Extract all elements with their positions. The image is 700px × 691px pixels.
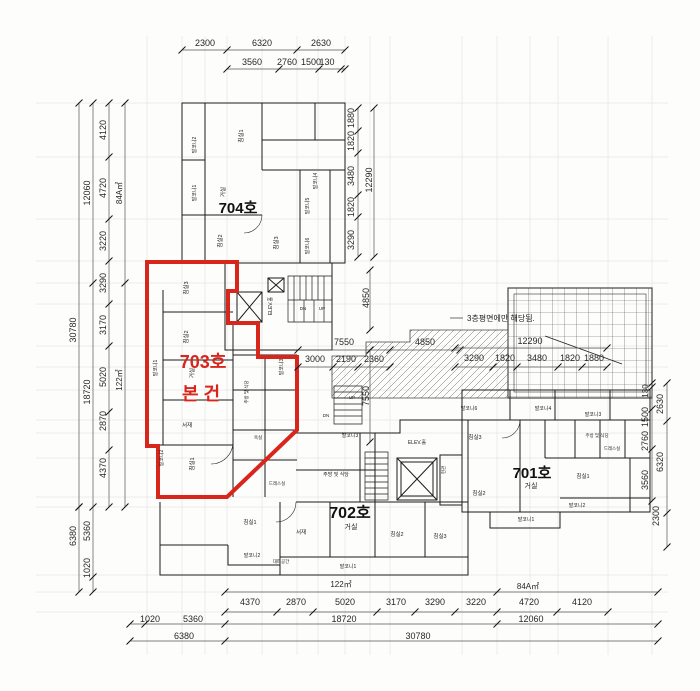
- room-label: UP: [349, 395, 355, 400]
- room-label: 서재: [296, 528, 306, 536]
- room-label: 침실2: [390, 530, 403, 538]
- dim-label: 3560: [640, 470, 650, 490]
- dim-label: 5020: [335, 597, 355, 607]
- room-label: DN: [300, 306, 307, 311]
- dim-label: 3290: [346, 230, 356, 250]
- dim-label: 122㎡: [330, 580, 351, 589]
- dim-label: 12060: [82, 180, 92, 205]
- room-label: 주방 및 식당: [243, 380, 250, 403]
- dim-label: 6380: [174, 631, 194, 641]
- subject-property-label: 본 건: [182, 384, 220, 404]
- dim-label: 6320: [655, 452, 665, 472]
- room-label: 거실: [345, 522, 358, 531]
- dim-label: 12290: [517, 336, 542, 346]
- room-label: 침실1: [243, 518, 256, 526]
- stair-702: [365, 452, 388, 500]
- dim-label: 130: [319, 57, 334, 67]
- unit-label-704: 704호: [219, 200, 258, 217]
- room-label: 거실: [525, 481, 538, 490]
- dim-label: 3220: [98, 231, 108, 251]
- room-label: 거실: [219, 187, 227, 197]
- dim-label: 2300: [651, 506, 661, 526]
- room-label: 대피공간: [273, 558, 290, 565]
- dim-label: 1020: [82, 558, 92, 578]
- dim-label: 3290: [425, 597, 445, 607]
- dim-label: 122㎡: [115, 369, 124, 390]
- dim-label: 4720: [519, 597, 539, 607]
- dim-label: 1820: [346, 197, 356, 217]
- dim-label: 4120: [572, 597, 592, 607]
- room-label: ELEV.홀: [408, 439, 427, 446]
- room-label: 주방 및 식당: [585, 432, 608, 439]
- room-label: 발코니2: [191, 136, 198, 153]
- dim-label: 18720: [82, 379, 92, 404]
- dim-label: 3000: [305, 354, 325, 364]
- dim-label: 4370: [98, 458, 108, 478]
- corridor-702-701: [440, 455, 462, 505]
- room-label: 서재: [182, 421, 192, 429]
- dim-label: 1500: [640, 407, 650, 427]
- dim-label: 1020: [140, 614, 160, 624]
- room-label: 침실2: [472, 489, 485, 497]
- dim-label: 2190: [336, 354, 356, 364]
- room-label: 발코니2: [158, 449, 165, 466]
- room-label: 침실1: [188, 457, 196, 470]
- dim-label: 2760: [277, 57, 297, 67]
- room-label: 발코니5: [304, 197, 311, 214]
- room-label: 침실3: [468, 433, 481, 441]
- stair-mid: [334, 386, 362, 424]
- dim-label: 4850: [361, 288, 371, 308]
- room-label: 침실3: [182, 281, 190, 294]
- room-label: 발코니6: [304, 237, 311, 254]
- dim-label: 3480: [527, 353, 547, 363]
- dim-label: 1820: [560, 353, 580, 363]
- dim-label: 2760: [640, 431, 650, 451]
- subject-unit-outline: [147, 262, 297, 497]
- floor-plan-sheet: 2300632026303560276015001303078012060187…: [0, 0, 700, 691]
- dim-label: 4370: [240, 597, 260, 607]
- dim-label: 5020: [98, 367, 108, 387]
- room-label: 발코니6: [461, 405, 478, 412]
- room-label: 침실3: [272, 236, 280, 249]
- dim-label: 7550: [334, 337, 354, 347]
- dim-label: 3170: [98, 315, 108, 335]
- dim-label: 84A㎡: [115, 182, 124, 204]
- room-label: 발코니2: [569, 502, 586, 509]
- dim-label: 2870: [286, 597, 306, 607]
- room-label: 드레스실: [269, 480, 286, 487]
- room-label: 발코니3: [585, 411, 602, 418]
- dim-label: 2630: [311, 38, 331, 48]
- dim-label: 3290: [464, 353, 484, 363]
- room-label: 발코니1: [518, 516, 535, 523]
- room-label: 발코니3: [342, 432, 359, 439]
- dim-label: 1880: [346, 108, 356, 128]
- dim-label: 84A㎡: [517, 582, 539, 591]
- dim-label: 5360: [82, 521, 92, 541]
- room-label: 침실3: [433, 532, 446, 540]
- unit-704-walls: [182, 103, 345, 263]
- room-label: 현관: [440, 466, 446, 474]
- dim-label: 7550: [361, 386, 371, 406]
- floor-note: 3층평면에만 해당됨.: [467, 313, 535, 323]
- dim-label: 12060: [518, 614, 543, 624]
- room-label: ELEV.홀: [267, 296, 274, 315]
- room-label: 침실1: [237, 129, 245, 142]
- room-label: 발코니4: [535, 405, 552, 412]
- room-label: 욕실: [254, 434, 262, 441]
- dim-label: 6320: [252, 38, 272, 48]
- dim-label: 1820: [495, 353, 515, 363]
- duct: [268, 278, 284, 292]
- dim-label: 4720: [98, 178, 108, 198]
- dim-label: 2870: [98, 411, 108, 431]
- room-label: 주방 및 식당: [323, 471, 349, 478]
- unit-label-703: 703호: [180, 352, 227, 372]
- dim-label: 4120: [98, 120, 108, 140]
- dim-label: 30780: [68, 317, 78, 342]
- room-label: 침실2: [216, 234, 224, 247]
- floor-plan-drawing: 2300632026303560276015001303078012060187…: [0, 0, 700, 691]
- dim-label: 1500: [301, 57, 321, 67]
- room-label: 발코니4: [312, 172, 319, 189]
- elevator-704: [237, 292, 262, 322]
- room-label: 발코니1: [152, 359, 159, 376]
- dim-label: 5360: [183, 614, 203, 624]
- room-label: 발코니2: [244, 552, 261, 559]
- room-label: 발코니1: [340, 563, 357, 570]
- dim-label: 2300: [195, 38, 215, 48]
- dim-label: 1880: [584, 353, 604, 363]
- dim-label: 12290: [364, 167, 374, 192]
- room-label: 침실2: [182, 330, 190, 343]
- dim-label: 30780: [405, 631, 430, 641]
- dim-label: 3220: [466, 597, 486, 607]
- room-label: 침실1: [576, 472, 589, 480]
- room-label: 드레스실: [604, 445, 621, 452]
- dim-label: 6380: [68, 526, 78, 546]
- elevator-702: [397, 458, 437, 500]
- dim-label: 2630: [655, 394, 665, 414]
- dim-label: 4850: [415, 337, 435, 347]
- dim-label: 18720: [331, 614, 356, 624]
- room-label: 발코니3: [278, 358, 285, 375]
- unit-label-701: 701호: [513, 465, 552, 482]
- dim-label: 130: [641, 384, 650, 398]
- dim-label: 2360: [364, 354, 384, 364]
- room-label: DN: [323, 413, 330, 418]
- dim-label: 3480: [346, 166, 356, 186]
- dim-label: 3560: [242, 57, 262, 67]
- unit-701-walls: [462, 390, 650, 528]
- room-label: UP: [319, 306, 325, 311]
- dim-label: 1820: [346, 131, 356, 151]
- unit-label-702: 702호: [329, 504, 371, 522]
- room-label: 발코니1: [191, 184, 198, 201]
- dim-label: 3170: [386, 597, 406, 607]
- dim-label: 3290: [98, 273, 108, 293]
